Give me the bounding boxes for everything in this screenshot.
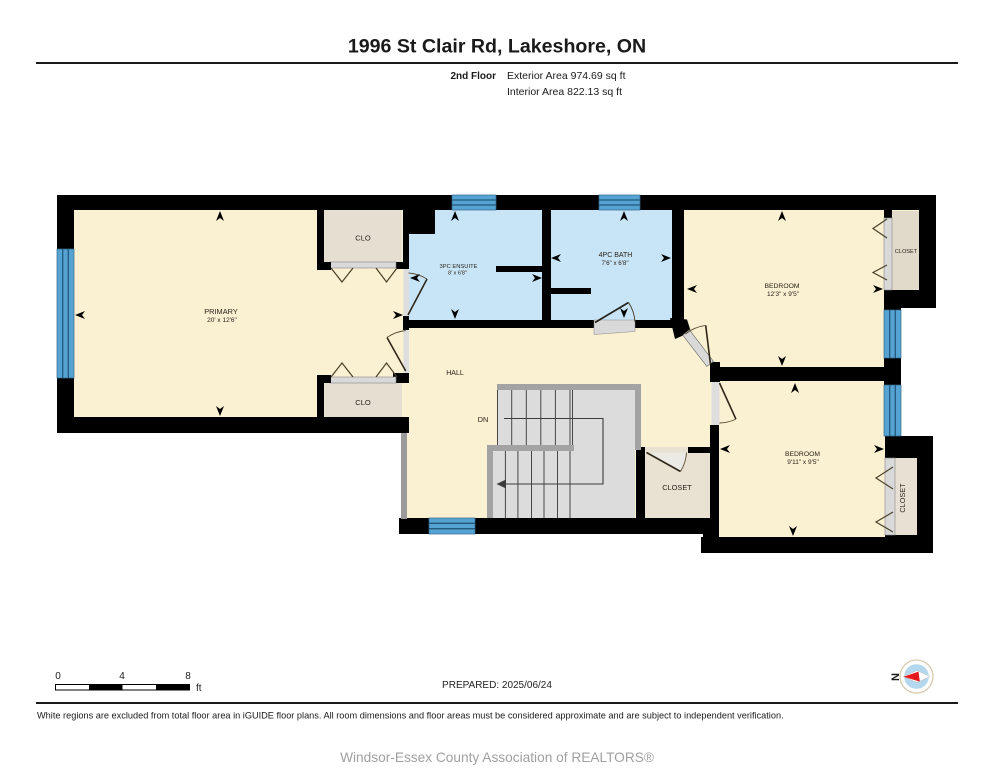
svg-text:BEDROOM: BEDROOM	[785, 451, 820, 458]
svg-text:CLO: CLO	[355, 234, 371, 243]
svg-text:DN: DN	[478, 415, 489, 424]
svg-text:CLOSET: CLOSET	[662, 483, 692, 492]
svg-text:4: 4	[119, 671, 125, 682]
svg-text:20' x 12'6": 20' x 12'6"	[207, 317, 237, 324]
svg-text:PREPARED: 2025/06/24: PREPARED: 2025/06/24	[442, 680, 552, 691]
svg-text:ft: ft	[196, 683, 202, 694]
svg-text:PRIMARY: PRIMARY	[204, 307, 238, 316]
svg-text:7'6" x 6'8": 7'6" x 6'8"	[601, 260, 628, 267]
svg-text:CLO: CLO	[355, 398, 371, 407]
svg-text:2nd Floor: 2nd Floor	[450, 71, 496, 82]
svg-text:3PC ENSUITE: 3PC ENSUITE	[439, 264, 477, 270]
svg-text:CLOSET: CLOSET	[895, 249, 918, 255]
svg-text:9'11" x 9'5": 9'11" x 9'5"	[787, 459, 819, 466]
svg-text:N: N	[890, 673, 902, 681]
svg-text:CLOSET: CLOSET	[898, 483, 907, 513]
svg-text:HALL: HALL	[446, 370, 464, 377]
svg-text:8' x 6'8": 8' x 6'8"	[448, 271, 467, 277]
svg-text:BEDROOM: BEDROOM	[764, 283, 799, 290]
svg-text:4PC BATH: 4PC BATH	[599, 252, 633, 259]
svg-text:0: 0	[55, 671, 61, 682]
svg-text:Interior Area 822.13 sq ft: Interior Area 822.13 sq ft	[507, 86, 622, 98]
svg-text:Windsor-Essex County Associati: Windsor-Essex County Association of REAL…	[340, 750, 654, 765]
svg-text:White regions are excluded fro: White regions are excluded from total fl…	[37, 711, 784, 721]
svg-text:Exterior Area 974.69 sq ft: Exterior Area 974.69 sq ft	[507, 70, 626, 82]
svg-text:12'3" x 9'5": 12'3" x 9'5"	[767, 291, 800, 298]
svg-text:1996 St Clair Rd, Lakeshore, O: 1996 St Clair Rd, Lakeshore, ON	[348, 36, 646, 58]
svg-text:8: 8	[185, 671, 191, 682]
